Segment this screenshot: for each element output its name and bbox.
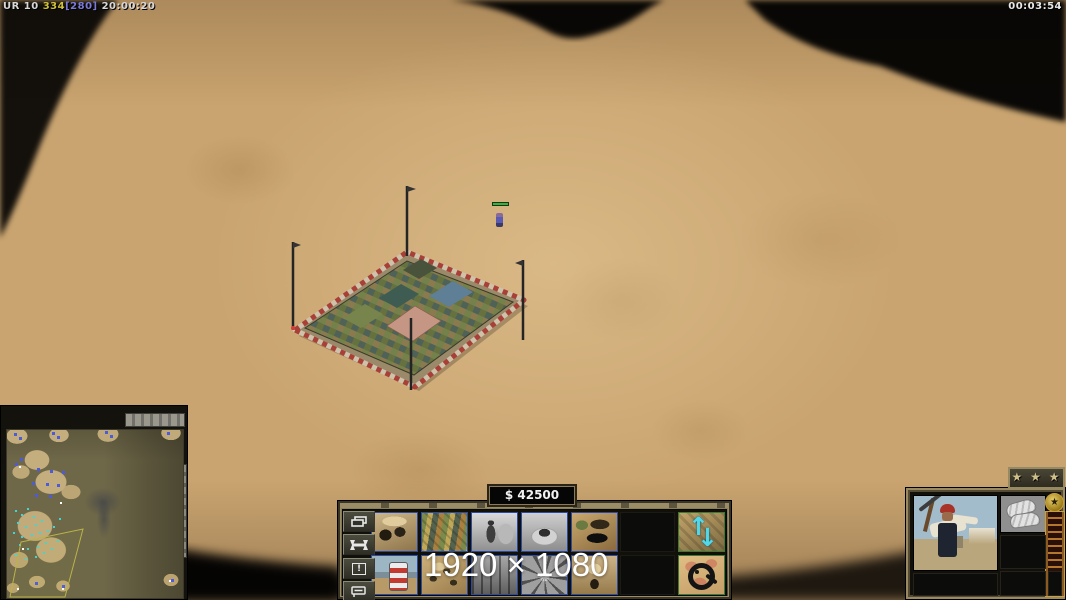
mine-detector-button[interactable]: [678, 555, 725, 595]
panel-slot-empty: [1049, 572, 1061, 595]
resource-status: UR 10 334[280] 20:00:20: [3, 1, 155, 12]
build-slot-supply-stash[interactable]: [421, 512, 468, 552]
rank-stars-plaque: ★ ★ ★: [1008, 467, 1065, 489]
worker-portrait[interactable]: [914, 496, 997, 570]
structures-tab-button[interactable]: [343, 511, 375, 532]
game-viewport: UR 10 334[280] 20:00:20 00:03:54 $ 42500: [0, 0, 1066, 600]
supply-count: 334: [43, 1, 65, 12]
barrel-icon: [389, 562, 408, 591]
minimap-frame: [0, 405, 188, 600]
veterancy-star-icon: ★: [1045, 493, 1064, 512]
build-slot-demo-barrel[interactable]: [371, 555, 418, 595]
detector-hub-icon: [695, 570, 699, 574]
repair-button[interactable]: [343, 534, 375, 555]
build-slot-worker-gray[interactable]: [471, 512, 518, 552]
upgrade-slot-empty: [1001, 536, 1045, 568]
build-slot-empty: [620, 512, 675, 552]
alert-button[interactable]: !: [343, 558, 375, 579]
panel-slot-empty: [914, 574, 997, 595]
shoes-upgrade-icon: [1001, 496, 1045, 532]
exclamation-icon: !: [352, 563, 366, 575]
build-slot-arms-yard[interactable]: [421, 555, 468, 595]
beacon-button[interactable]: [343, 581, 375, 600]
shoe-icon: [1010, 512, 1039, 528]
build-slot-barracks[interactable]: [371, 512, 418, 552]
arrow-down-icon: ↓: [697, 525, 718, 550]
session-time: 20:00:20: [98, 1, 156, 12]
worker-unit[interactable]: [496, 213, 503, 227]
portrait-background-buildings: [969, 528, 995, 544]
build-slot-tunnel-gray[interactable]: [521, 512, 568, 552]
money-display: $ 42500: [489, 486, 575, 505]
build-slot-palace[interactable]: [571, 555, 618, 595]
status-prefix: UR 10: [3, 1, 43, 12]
build-slot-black-market[interactable]: [571, 512, 618, 552]
minimap-corner-bracket: [125, 413, 185, 427]
build-slot-wheel-gray[interactable]: [521, 555, 568, 595]
worker-face: [942, 512, 953, 521]
build-slot-interior-gray[interactable]: [471, 555, 518, 595]
raise-lower-button[interactable]: ↑ ↓: [678, 512, 725, 552]
worker-vest: [938, 523, 957, 557]
beacon-flag-icon: [351, 586, 367, 597]
command-bar: ! ↑ ↓: [337, 500, 732, 600]
supply-stash-building[interactable]: [283, 178, 535, 393]
minimap[interactable]: [6, 429, 184, 599]
panel-slot-empty: [1001, 572, 1045, 595]
supply-limit: [280]: [65, 1, 98, 12]
camera-frustum: [7, 430, 183, 598]
health-bar: [492, 202, 509, 206]
windows-icon: [351, 516, 367, 527]
unit-info-panel: ★: [905, 487, 1066, 600]
wrench-icon: [350, 540, 368, 550]
match-clock: 00:03:54: [1008, 1, 1062, 12]
build-slot-empty: [620, 555, 675, 595]
